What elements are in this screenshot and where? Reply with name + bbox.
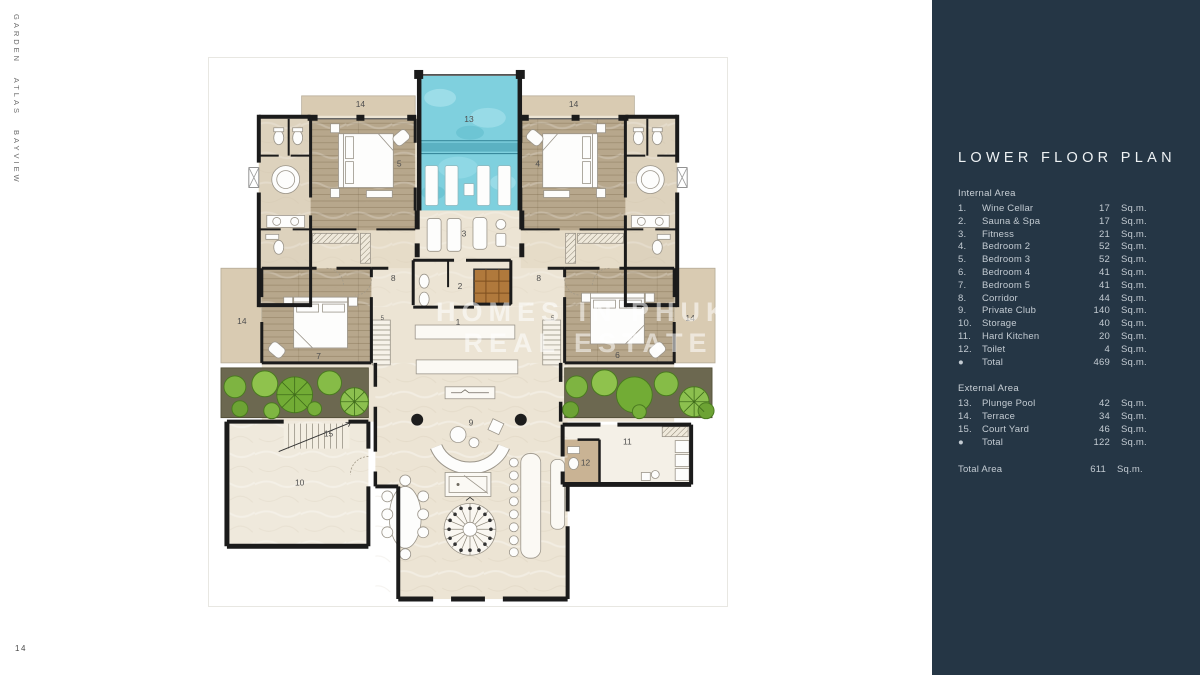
legend-label: Fitness (982, 229, 1070, 242)
legend-unit: Sq.m. (1114, 241, 1200, 254)
legend-unit: Sq.m. (1114, 424, 1200, 437)
legend-unit: Sq.m. (1114, 437, 1200, 450)
internal-area-section: Internal Area 1.Wine Cellar17Sq.m.2.Saun… (958, 188, 1200, 369)
room-label-10: 10 (295, 477, 305, 487)
total-area-label: Total Area (958, 464, 1066, 477)
room-label-14: 14 (685, 313, 695, 323)
legend-unit: Sq.m. (1114, 357, 1200, 370)
legend-label: Corridor (982, 293, 1070, 306)
legend-unit: Sq.m. (1114, 318, 1200, 331)
legend-num: ● (958, 437, 978, 450)
room-label-12: 12 (581, 458, 591, 468)
legend-label: Toilet (982, 344, 1070, 357)
legend-label: Bedroom 5 (982, 280, 1070, 293)
external-area-heading: External Area (958, 383, 1200, 394)
legend-num: 7. (958, 280, 978, 293)
legend-label: Bedroom 4 (982, 267, 1070, 280)
room-label-14: 14 (237, 316, 247, 326)
legend-value: 20 (1074, 331, 1110, 344)
room-label-2: 2 (458, 281, 463, 291)
legend-num: 6. (958, 267, 978, 280)
legend-row: 13.Plunge Pool42Sq.m. (958, 398, 1200, 411)
legend-unit: Sq.m. (1114, 331, 1200, 344)
legend-num: 4. (958, 241, 978, 254)
legend-num: 11. (958, 331, 978, 344)
floor-plan-card: 141314543882114147655915101112 (208, 57, 728, 607)
total-area-value: 611 (1070, 464, 1106, 477)
legend-row: 1.Wine Cellar17Sq.m. (958, 203, 1200, 216)
legend-value: 17 (1074, 216, 1110, 229)
page-number: 14 (15, 644, 27, 653)
page: { "page": { "number": "14", "brand_verti… (0, 0, 1200, 675)
window-right (677, 168, 687, 188)
legend-row: 8.Corridor44Sq.m. (958, 293, 1200, 306)
legend-label: Bedroom 3 (982, 254, 1070, 267)
legend-row: 12.Toilet4Sq.m. (958, 344, 1200, 357)
legend-unit: Sq.m. (1114, 398, 1200, 411)
legend-label: Storage (982, 318, 1070, 331)
legend-value: 469 (1074, 357, 1110, 370)
legend-unit: Sq.m. (1114, 411, 1200, 424)
legend-row: 7.Bedroom 541Sq.m. (958, 280, 1200, 293)
legend-row: 10.Storage40Sq.m. (958, 318, 1200, 331)
stairs-hall-left (372, 320, 390, 365)
legend-value: 41 (1074, 280, 1110, 293)
legend-label: Plunge Pool (982, 398, 1070, 411)
legend-row: 11.Hard Kitchen20Sq.m. (958, 331, 1200, 344)
legend-num: 9. (958, 305, 978, 318)
legend-unit: Sq.m. (1114, 216, 1200, 229)
legend-value: 4 (1074, 344, 1110, 357)
wine-cellar-floor (474, 269, 511, 304)
legend-row: 5.Bedroom 352Sq.m. (958, 254, 1200, 267)
legend-row: 15.Court Yard46Sq.m. (958, 424, 1200, 437)
legend-label: Hard Kitchen (982, 331, 1070, 344)
room-label-15: 15 (324, 429, 334, 439)
legend-num: ● (958, 357, 978, 370)
legend-num: 1. (958, 203, 978, 216)
legend-unit: Sq.m. (1114, 254, 1200, 267)
room-label-3: 3 (462, 228, 467, 238)
room-label-11: 11 (623, 437, 632, 447)
room-label-6: 6 (615, 350, 620, 360)
legend-value: 52 (1074, 241, 1110, 254)
legend-value: 34 (1074, 411, 1110, 424)
legend-value: 17 (1074, 203, 1110, 216)
legend-num: 3. (958, 229, 978, 242)
legend-num: 15. (958, 424, 978, 437)
legend-row: 4.Bedroom 252Sq.m. (958, 241, 1200, 254)
legend-row: 9.Private Club140Sq.m. (958, 305, 1200, 318)
legend-value: 44 (1074, 293, 1110, 306)
legend-num: 2. (958, 216, 978, 229)
legend-row: 14.Terrace34Sq.m. (958, 411, 1200, 424)
room-label-14: 14 (356, 99, 366, 109)
room-label-13: 13 (464, 114, 474, 124)
legend-unit: Sq.m. (1114, 229, 1200, 242)
legend-label: Wine Cellar (982, 203, 1070, 216)
room-label-8: 8 (391, 273, 396, 283)
legend-unit: Sq.m. (1114, 305, 1200, 318)
legend-num: 5. (958, 254, 978, 267)
legend-num: 13. (958, 398, 978, 411)
legend-label: Total (982, 357, 1070, 370)
legend-value: 46 (1074, 424, 1110, 437)
legend-value: 140 (1074, 305, 1110, 318)
billiard-table (445, 472, 491, 496)
legend-value: 122 (1074, 437, 1110, 450)
legend-unit: Sq.m. (1114, 267, 1200, 280)
legend-num: 8. (958, 293, 978, 306)
stairs-hall-right (543, 320, 561, 365)
internal-area-list: 1.Wine Cellar17Sq.m.2.Sauna & Spa17Sq.m.… (958, 203, 1200, 369)
brand-vertical-text: GARDEN ATLAS BAYVIEW (12, 14, 21, 185)
legend-row: 2.Sauna & Spa17Sq.m. (958, 216, 1200, 229)
legend-num: 14. (958, 411, 978, 424)
room-label-14: 14 (569, 99, 579, 109)
external-area-list: 13.Plunge Pool42Sq.m.14.Terrace34Sq.m.15… (958, 398, 1200, 449)
legend-unit: Sq.m. (1114, 344, 1200, 357)
legend-num: 10. (958, 318, 978, 331)
legend-row: 6.Bedroom 441Sq.m. (958, 267, 1200, 280)
legend-value: 40 (1074, 318, 1110, 331)
legend-value: 42 (1074, 398, 1110, 411)
legend-label: Court Yard (982, 424, 1070, 437)
legend-unit: Sq.m. (1114, 203, 1200, 216)
legend-value: 41 (1074, 267, 1110, 280)
legend-row: 3.Fitness21Sq.m. (958, 229, 1200, 242)
total-area-unit: Sq.m. (1110, 464, 1200, 477)
legend-label: Total (982, 437, 1070, 450)
legend-unit: Sq.m. (1114, 293, 1200, 306)
external-area-section: External Area 13.Plunge Pool42Sq.m.14.Te… (958, 383, 1200, 449)
total-area-row: Total Area 611 Sq.m. (958, 464, 1200, 477)
legend-row: ●Total469Sq.m. (958, 357, 1200, 370)
legend-unit: Sq.m. (1114, 280, 1200, 293)
legend-label: Private Club (982, 305, 1070, 318)
room-label-7: 7 (316, 351, 321, 361)
floor-plan-svg: 141314543882114147655915101112 (209, 58, 727, 606)
legend-row: ●Total122Sq.m. (958, 437, 1200, 450)
room-label-4: 4 (535, 159, 540, 169)
room-label-5: 5 (397, 159, 402, 169)
legend-label: Sauna & Spa (982, 216, 1070, 229)
sidebar: LOWER FLOOR PLAN Internal Area 1.Wine Ce… (932, 0, 1200, 675)
plunge-pool (419, 76, 520, 211)
room-label-9: 9 (469, 418, 474, 428)
legend-num: 12. (958, 344, 978, 357)
legend-label: Terrace (982, 411, 1070, 424)
sidebar-title: LOWER FLOOR PLAN (958, 150, 1200, 166)
legend-value: 52 (1074, 254, 1110, 267)
room-label-8: 8 (536, 273, 541, 283)
legend-label: Bedroom 2 (982, 241, 1070, 254)
stairs-storage (279, 423, 351, 452)
window-left (249, 168, 259, 188)
room-label-1: 1 (456, 317, 461, 327)
internal-area-heading: Internal Area (958, 188, 1200, 199)
legend-value: 21 (1074, 229, 1110, 242)
